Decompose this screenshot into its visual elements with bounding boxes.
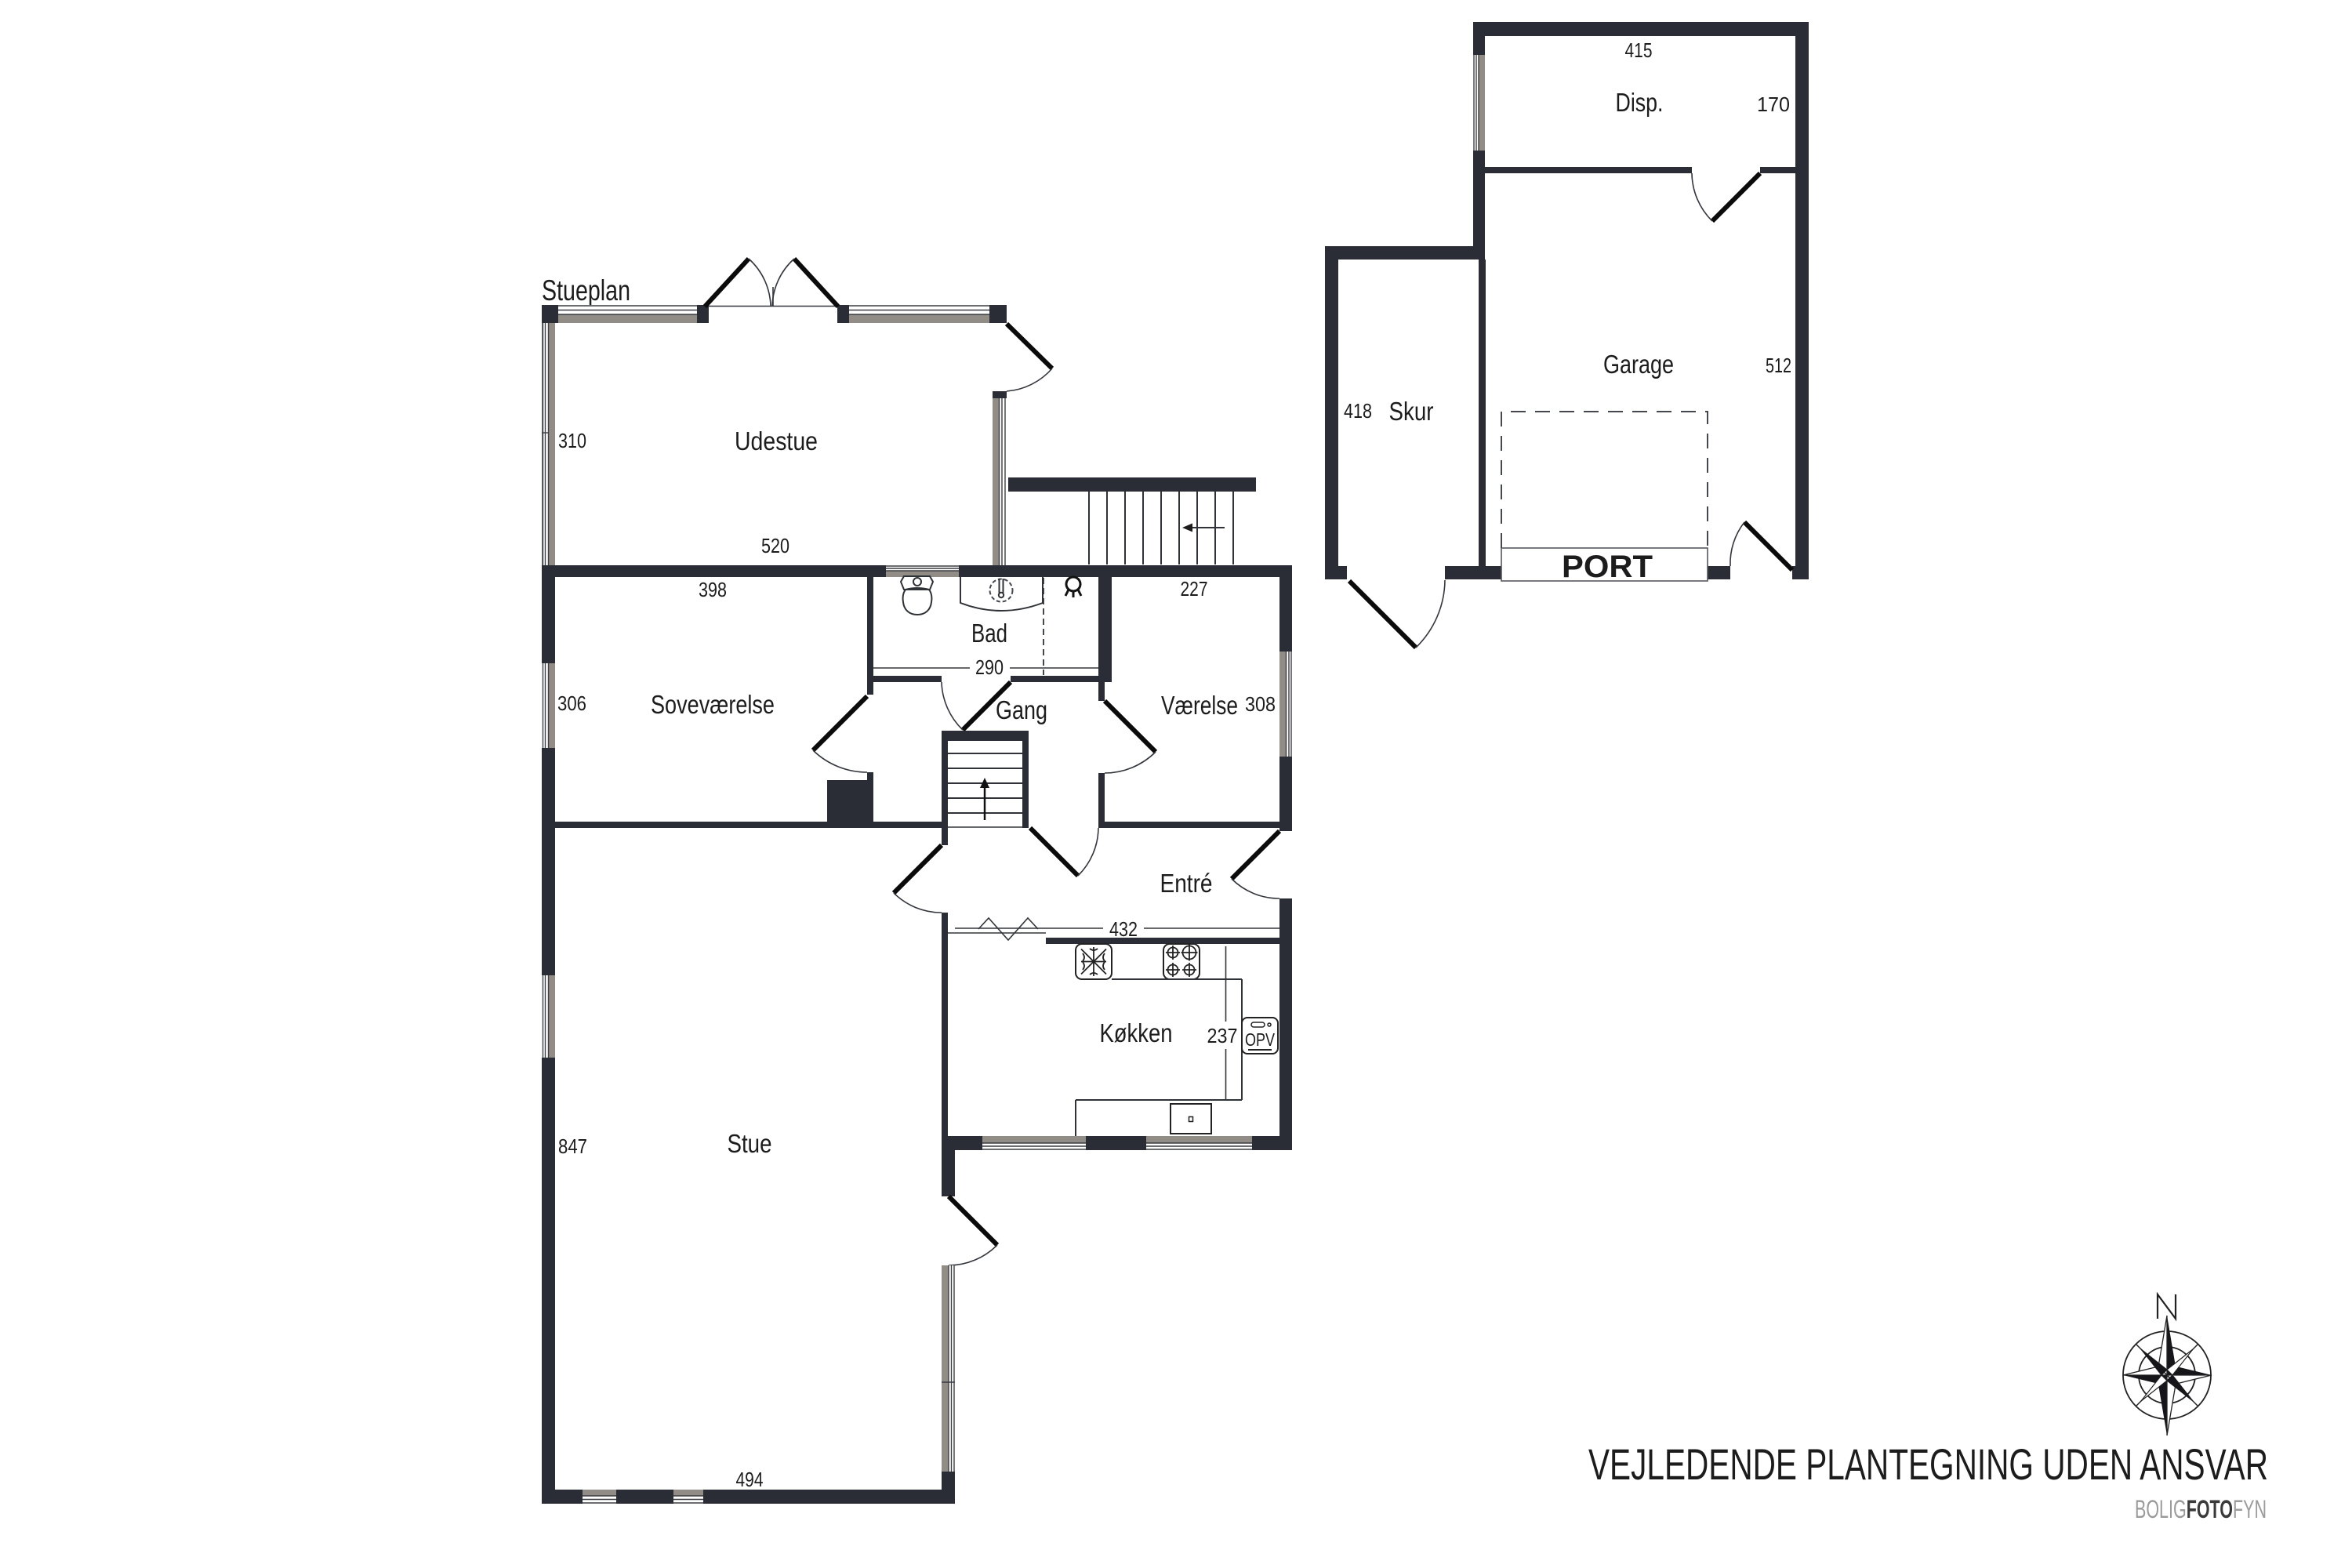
svg-text:Køkken: Køkken: [1100, 1018, 1173, 1047]
svg-text:Bad: Bad: [971, 619, 1007, 648]
svg-text:237: 237: [1207, 1024, 1238, 1047]
svg-text:494: 494: [736, 1468, 764, 1491]
svg-text:418: 418: [1344, 399, 1372, 423]
svg-text:847: 847: [558, 1134, 587, 1158]
svg-text:Udestue: Udestue: [735, 426, 818, 456]
svg-text:Garage: Garage: [1603, 350, 1674, 379]
svg-text:Stue: Stue: [728, 1129, 772, 1158]
svg-text:Gang: Gang: [996, 695, 1047, 724]
svg-text:415: 415: [1625, 38, 1653, 62]
svg-text:227: 227: [1181, 577, 1208, 601]
svg-text:306: 306: [557, 691, 586, 715]
svg-text:Værelse: Værelse: [1161, 691, 1238, 720]
svg-text:Entré: Entré: [1160, 869, 1213, 898]
svg-text:432: 432: [1109, 917, 1138, 941]
svg-text:VEJLEDENDE PLANTEGNING UDEN AN: VEJLEDENDE PLANTEGNING UDEN ANSVAR: [1588, 1439, 2268, 1489]
svg-text:Soveværelse: Soveværelse: [651, 690, 775, 719]
svg-text:310: 310: [558, 429, 586, 452]
svg-text:BOLIGFOTOFYN: BOLIGFOTOFYN: [2135, 1495, 2267, 1523]
svg-text:512: 512: [1766, 354, 1791, 377]
svg-text:308: 308: [1245, 692, 1276, 716]
svg-text:398: 398: [699, 578, 727, 601]
svg-text:170: 170: [1757, 93, 1790, 116]
svg-text:PORT: PORT: [1562, 550, 1653, 584]
svg-text:520: 520: [761, 534, 789, 557]
svg-text:OPV: OPV: [1245, 1029, 1276, 1050]
svg-text:Skur: Skur: [1389, 397, 1434, 426]
svg-text:Disp.: Disp.: [1616, 88, 1664, 117]
svg-text:Stueplan: Stueplan: [542, 274, 630, 307]
svg-text:290: 290: [975, 655, 1004, 679]
